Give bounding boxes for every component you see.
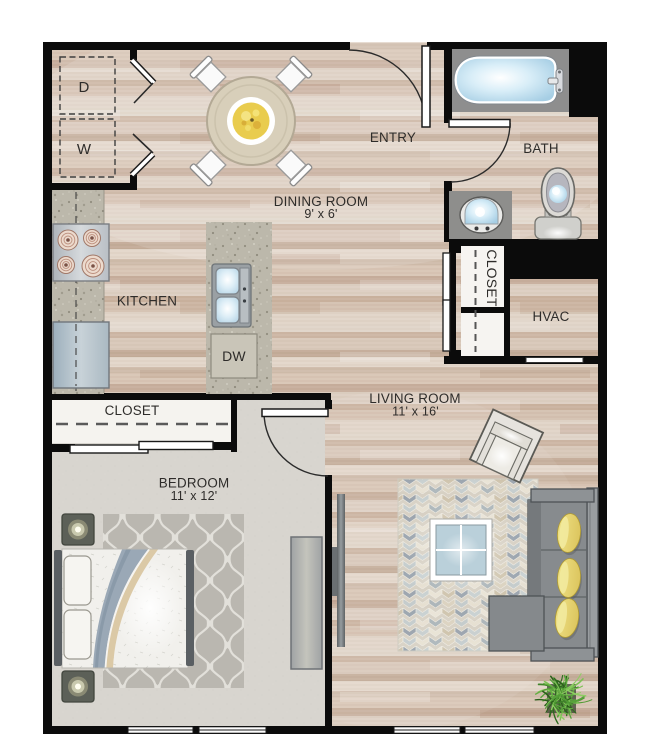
svg-text:CLOSET: CLOSET <box>105 403 160 418</box>
svg-text:11' x 12': 11' x 12' <box>171 489 218 503</box>
svg-text:KITCHEN: KITCHEN <box>117 294 177 309</box>
svg-text:HVAC: HVAC <box>532 309 569 324</box>
svg-text:BATH: BATH <box>523 141 559 156</box>
svg-text:CLOSET: CLOSET <box>484 249 500 306</box>
svg-text:DW: DW <box>222 348 246 364</box>
svg-text:W: W <box>77 141 92 158</box>
svg-text:9' x 6': 9' x 6' <box>304 207 337 221</box>
svg-text:ENTRY: ENTRY <box>370 130 416 145</box>
svg-text:11' x 16': 11' x 16' <box>392 405 439 419</box>
svg-text:D: D <box>78 79 89 96</box>
